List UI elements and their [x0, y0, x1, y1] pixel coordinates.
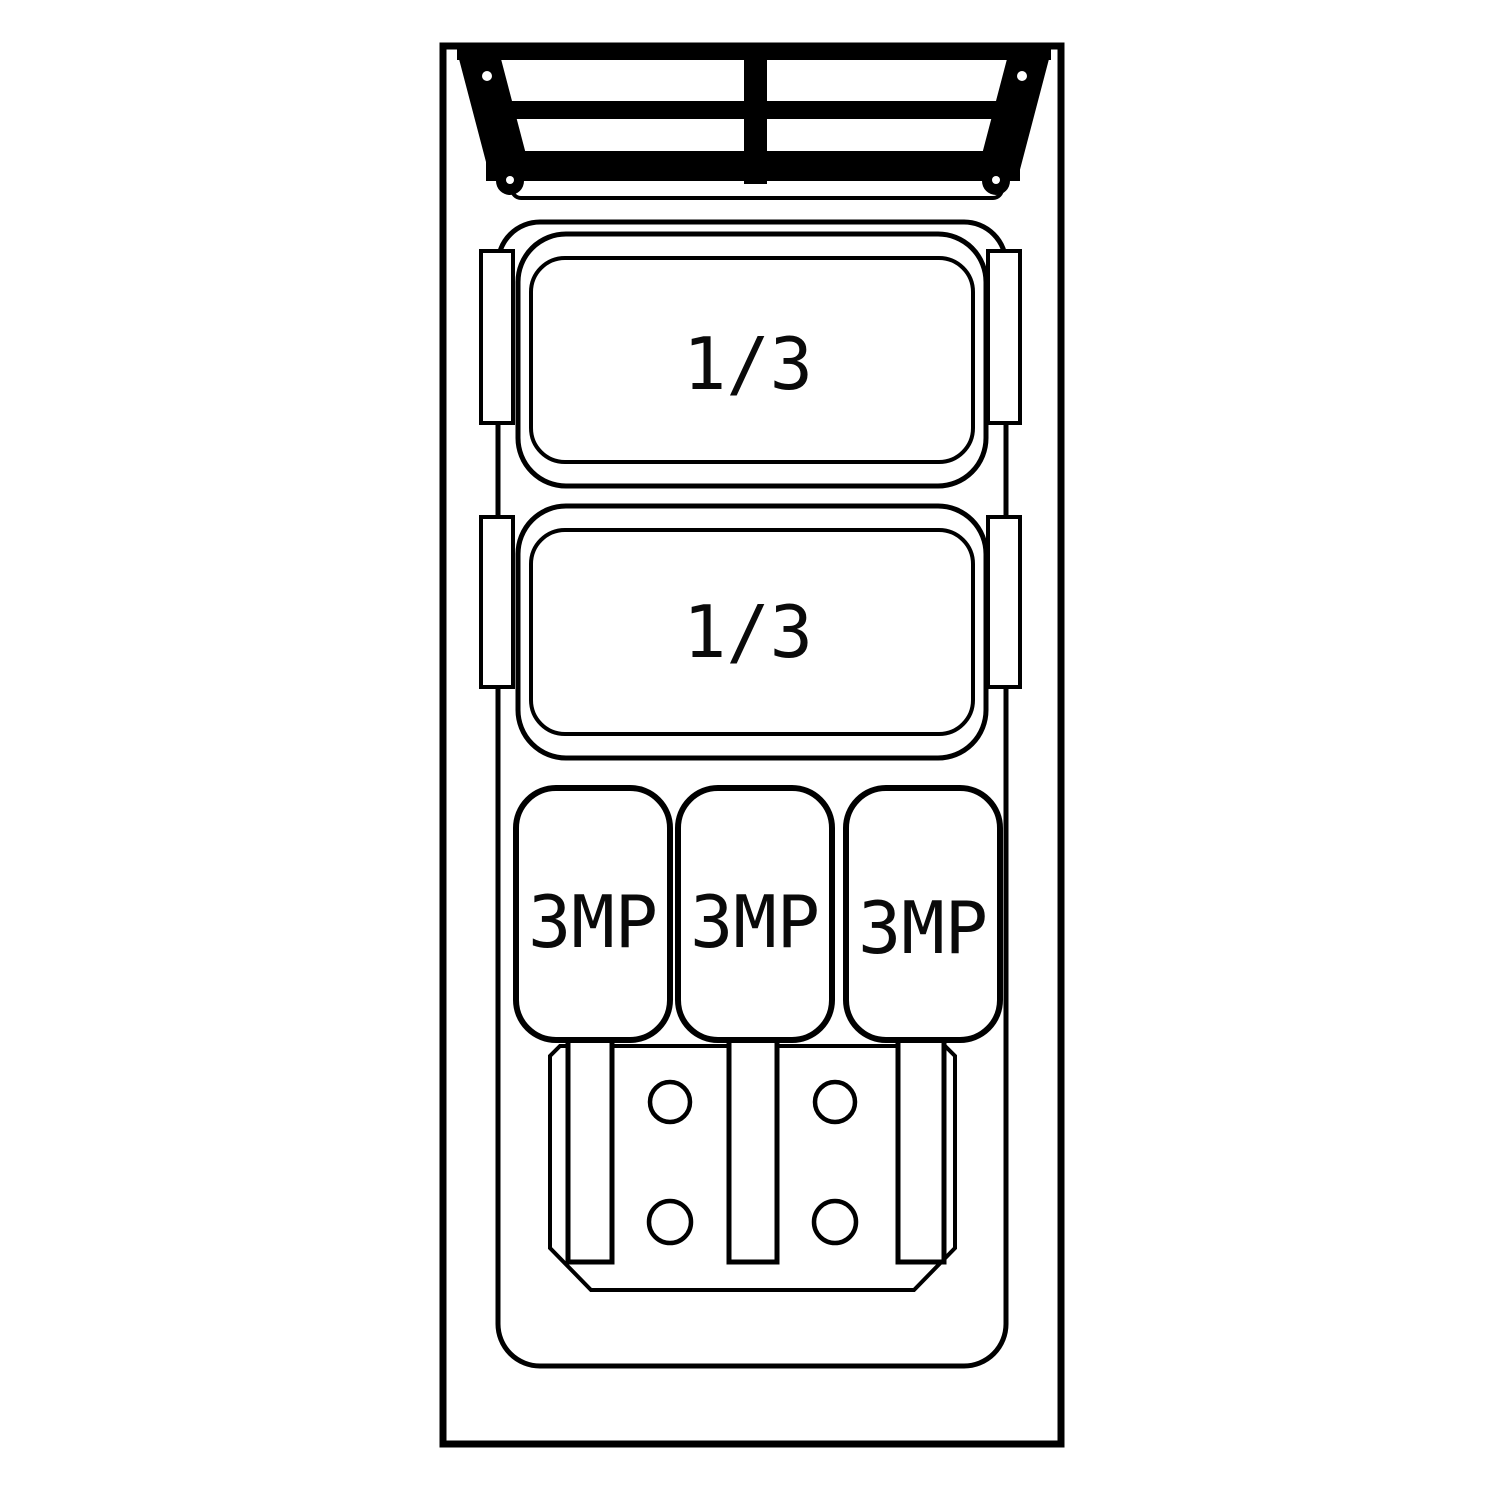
pan-small-3: 3MP — [846, 788, 1000, 1040]
pan-clip-left-1 — [481, 251, 513, 423]
pan-stem-1 — [568, 1032, 612, 1262]
plate-hole-top-right — [815, 1082, 855, 1122]
pan-small-2-label: 3MP — [690, 880, 820, 964]
grille-rivet-bottom-right — [992, 176, 1000, 184]
pan-large-1-label: 1/3 — [683, 322, 813, 406]
pan-large-2-label: 1/3 — [683, 590, 813, 674]
pan-small-1: 3MP — [516, 788, 670, 1040]
grille-center-post — [744, 43, 767, 184]
plate-hole-bottom-right — [814, 1201, 856, 1243]
pan-small-1-label: 3MP — [528, 880, 658, 964]
pan-large-2: 1/3 — [518, 506, 986, 758]
pan-clip-right-2 — [988, 517, 1020, 687]
plate-hole-top-left — [650, 1082, 690, 1122]
drawing-canvas: 1/3 1/3 3MP 3MP 3MP — [0, 0, 1500, 1500]
grille-rivet-top-left — [482, 71, 492, 81]
plate-hole-bottom-left — [649, 1201, 691, 1243]
pan-large-1: 1/3 — [518, 234, 986, 486]
pan-stem-3 — [898, 1032, 944, 1262]
pan-clip-right-1 — [988, 251, 1020, 423]
pan-clip-left-2 — [481, 517, 513, 687]
grille-rivet-bottom-left — [506, 176, 514, 184]
grille-rivet-top-right — [1017, 71, 1027, 81]
pan-small-2: 3MP — [678, 788, 832, 1040]
pan-small-3-label: 3MP — [858, 886, 988, 970]
pan-stem-2 — [729, 1032, 777, 1262]
